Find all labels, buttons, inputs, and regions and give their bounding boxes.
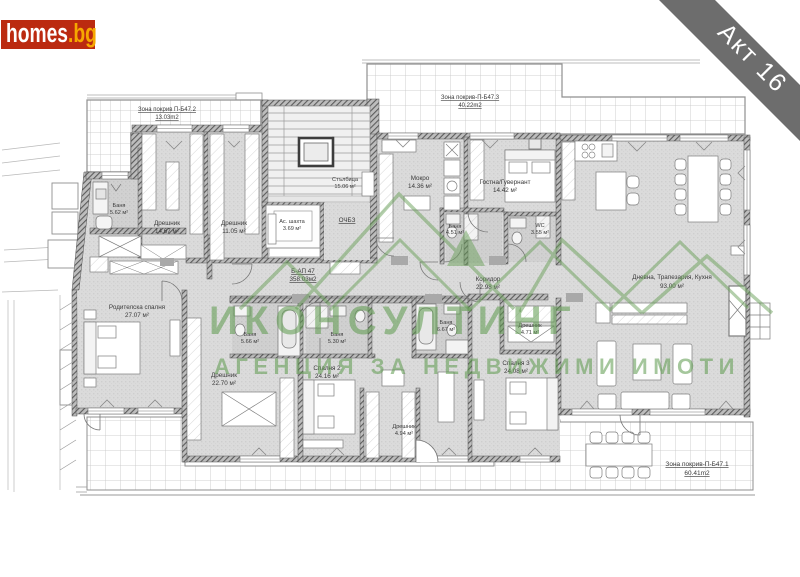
svg-text:22.70 м²: 22.70 м² [212,380,236,387]
svg-text:Баня: Баня [113,203,126,209]
svg-text:homes.bg: homes.bg [6,18,97,48]
svg-text:ИКОНСУЛТИНГ: ИКОНСУЛТИНГ [209,299,577,343]
svg-text:14.42 м²: 14.42 м² [493,187,517,194]
svg-text:Зона покрив-П-Б47.3: Зона покрив-П-Б47.3 [441,95,500,101]
svg-text:4.51 м²: 4.51 м² [446,230,464,236]
svg-text:WC: WC [535,223,544,229]
svg-text:15.06 м²: 15.06 м² [334,184,355,190]
svg-text:11.05 м²: 11.05 м² [222,228,245,235]
svg-text:13.03m2: 13.03m2 [155,115,179,121]
svg-text:40.22m2: 40.22m2 [458,103,482,109]
svg-text:14.36 м²: 14.36 м² [408,183,432,190]
svg-text:3.69 м²: 3.69 м² [283,226,301,232]
svg-text:3.55 м²: 3.55 м² [531,230,549,236]
svg-text:Зона покрив-П-Б47.1: Зона покрив-П-Б47.1 [665,461,729,468]
svg-text:ОЧБЗ: ОЧБЗ [339,217,356,224]
svg-text:Родителска спалня: Родителска спалня [109,304,165,311]
svg-text:Стълбица: Стълбица [332,177,359,183]
svg-text:Зона покрив П-Б47.2: Зона покрив П-Б47.2 [138,107,197,113]
svg-text:5.62 м²: 5.62 м² [110,210,128,216]
svg-text:Гостна/Гувернант: Гостна/Гувернант [479,179,530,186]
svg-text:Дрешник: Дрешник [154,220,180,227]
svg-text:27.07 м²: 27.07 м² [125,312,149,319]
svg-text:Дрешник: Дрешник [221,220,247,227]
svg-text:14.67 м²: 14.67 м² [155,228,179,235]
svg-text:Мокро: Мокро [411,175,430,182]
svg-text:60.41m2: 60.41m2 [684,470,710,477]
svg-text:4.94 м²: 4.94 м² [395,431,413,437]
svg-text:Дрешник: Дрешник [392,424,416,430]
svg-text:АГЕНЦИЯ ЗА НЕДВИЖИМИ ИМОТИ: АГЕНЦИЯ ЗА НЕДВИЖИМИ ИМОТИ [214,354,740,379]
svg-text:Ас. шахта: Ас. шахта [279,219,305,225]
